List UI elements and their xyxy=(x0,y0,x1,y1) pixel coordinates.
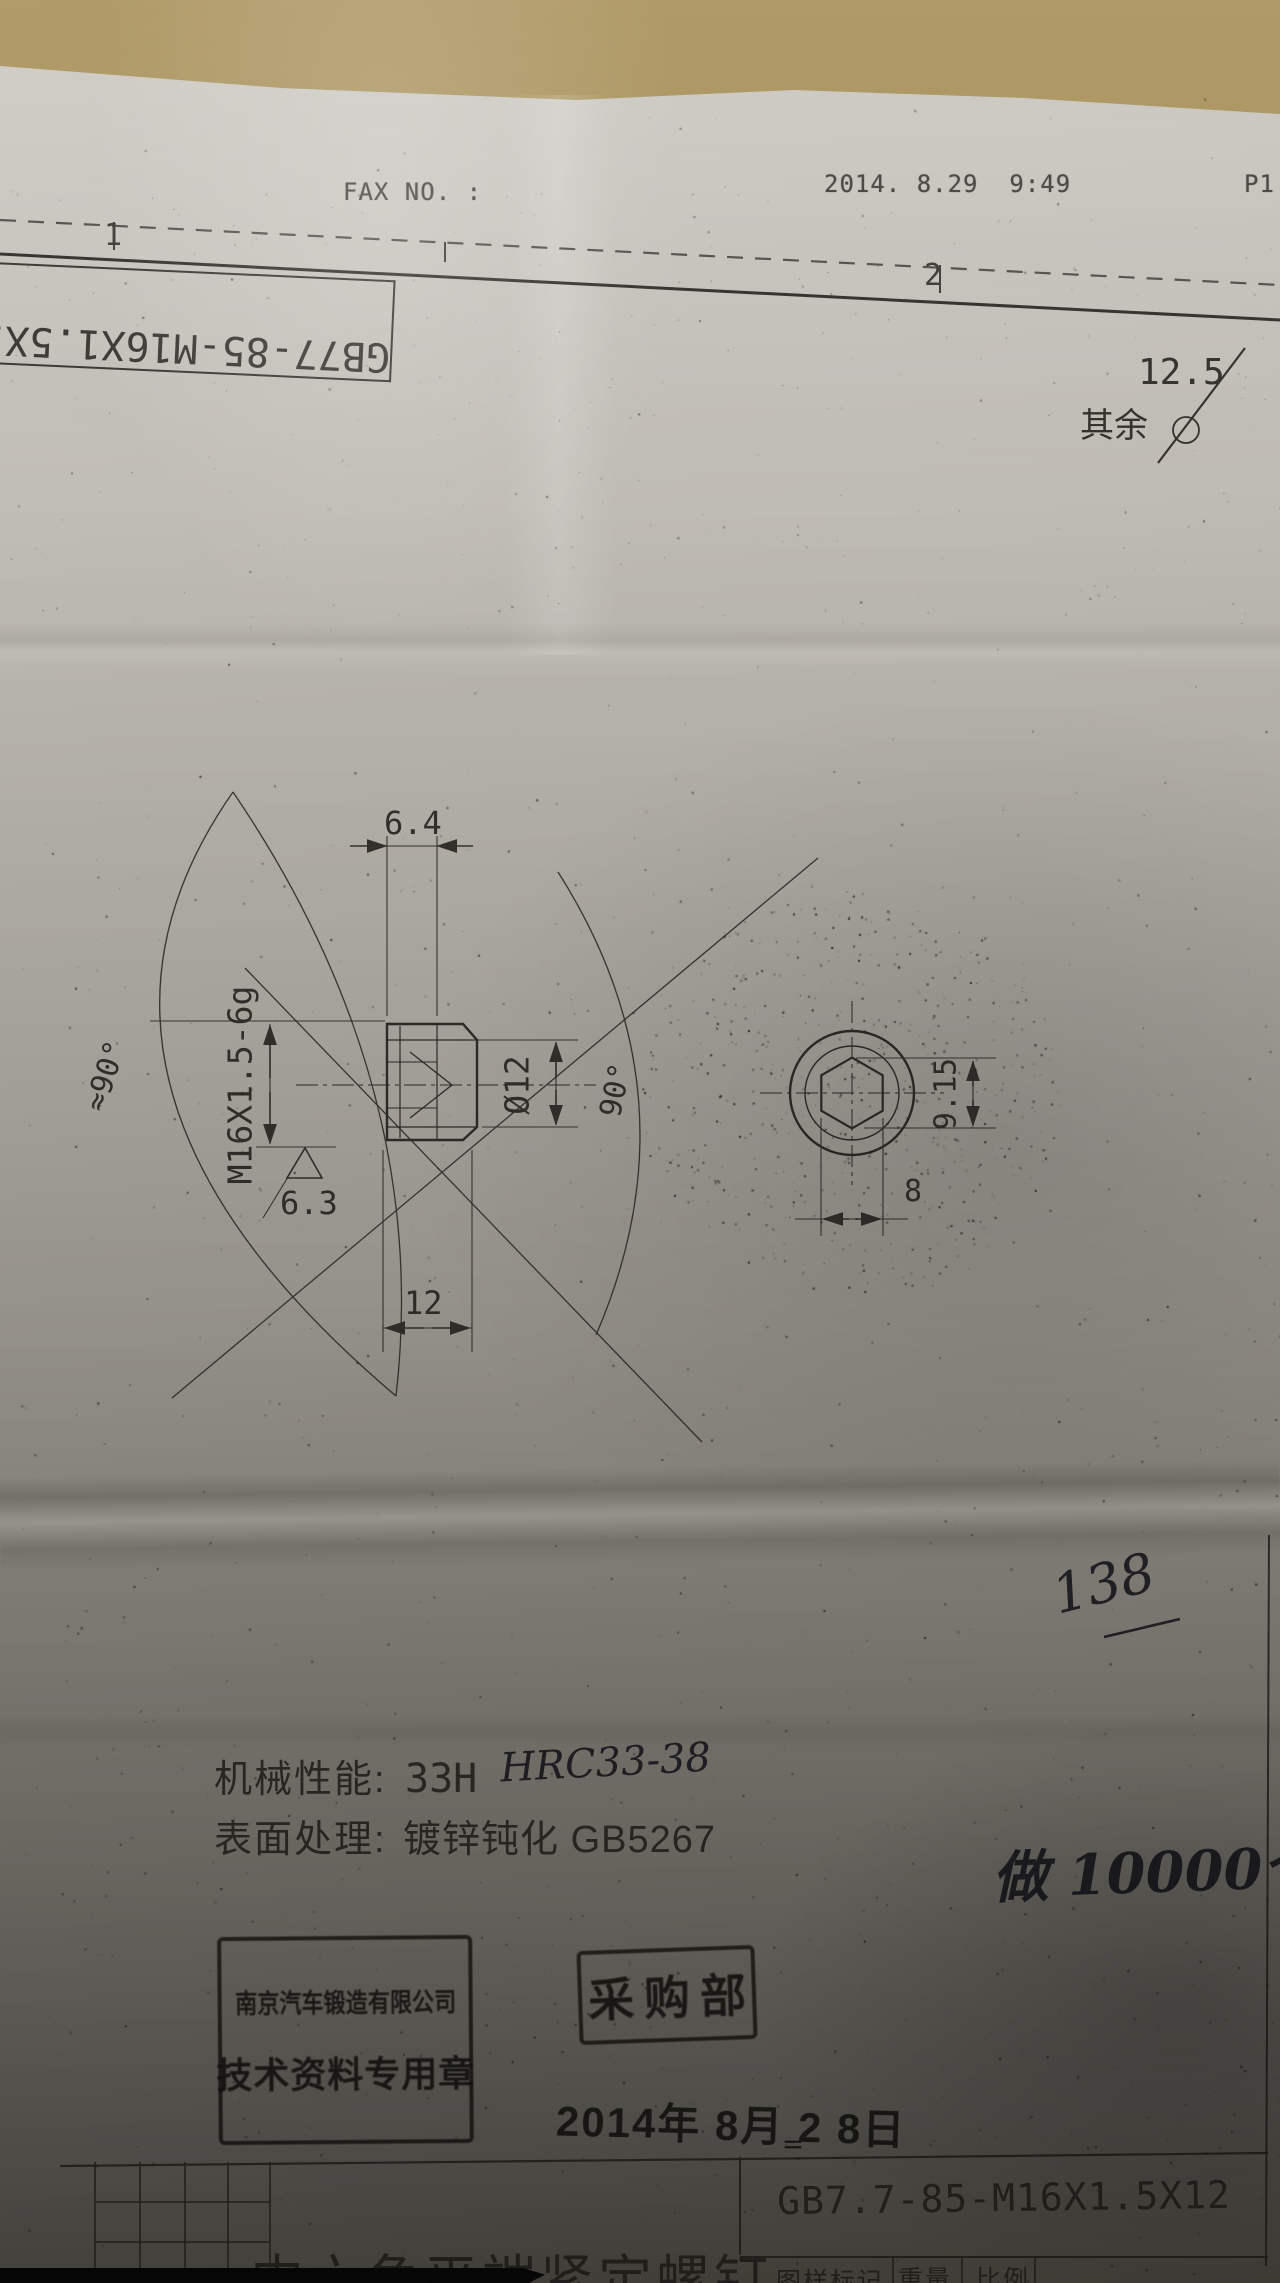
note-mechanical-label: 机械性能: xyxy=(214,1759,387,1801)
designation-text: GB7.7-85-M16X1.5X12 xyxy=(777,2173,1231,2223)
purchasing-dept-text: 采购部 xyxy=(577,1959,757,2031)
date-stamp-mark: ＝ xyxy=(782,2128,804,2160)
dim-socket-width: 6.4 xyxy=(384,804,442,842)
fax-photo-page: FAX NO. : 2014. 8.29 9:49 P1 1 2 GB77-85… xyxy=(0,0,1280,2283)
fax-datetime: 2014. 8.29 9:49 xyxy=(824,170,1071,198)
company-seal: 南京汽车锻造有限公司 技术资料专用章 xyxy=(217,1935,474,2145)
surface-roughness-prefix: 其余 xyxy=(1080,398,1148,447)
dim-point-diameter: Ø12 xyxy=(498,1055,537,1115)
flipped-designation-box: GB77-85-M16X1.5X12 xyxy=(0,262,396,382)
purchasing-dept-seal: 采购部 xyxy=(576,1945,757,2045)
title-block-header-mark: 图样标记 xyxy=(776,2262,884,2283)
surface-roughness-value: 12.5 xyxy=(1138,352,1225,393)
ruler-mark-2: 2 xyxy=(924,258,942,293)
title-block-header-weight: 重量 xyxy=(898,2260,952,2283)
dim-roughness-63: 6.3 xyxy=(280,1184,338,1222)
dim-across-corners: 9.15 xyxy=(929,1058,964,1130)
company-seal-line2: 技术资料专用章 xyxy=(216,2044,475,2098)
note-mechanical: 机械性能: 33H xyxy=(214,1748,477,1803)
note-surface: 表面处理: 镀锌钝化 GB5267 xyxy=(214,1808,716,1863)
fax-page-number: P1 xyxy=(1244,170,1275,198)
title-block-header-scale: 比例 xyxy=(976,2260,1030,2283)
screw-end-view xyxy=(760,1001,944,1185)
dim-length: 12 xyxy=(404,1284,443,1322)
fax-number-label: FAX NO. : xyxy=(343,178,482,206)
note-mechanical-value: 33H xyxy=(405,1756,477,1802)
dim-across-flats: 8 xyxy=(904,1174,922,1209)
part-name: 内六角平端紧定螺钉 xyxy=(250,2236,772,2283)
ruler-mark-1: 1 xyxy=(104,218,122,253)
handwritten-quantity: 做 10000个 xyxy=(991,1822,1280,1914)
extension-lines xyxy=(150,836,996,1352)
surface-roughness-symbol xyxy=(287,1148,322,1178)
note-surface-label: 表面处理: xyxy=(214,1819,387,1861)
handwriting-underline xyxy=(1104,1619,1180,1637)
date-stamp: 2014年 8月 2 8日 xyxy=(555,2087,907,2157)
company-seal-line1: 南京汽车锻造有限公司 xyxy=(235,1982,456,2021)
flipped-designation-text: GB77-85-M16X1.5X12 xyxy=(0,262,393,380)
dim-thread-callout: M16X1.5-6g xyxy=(221,986,260,1185)
note-surface-value: 镀锌钝化 GB5267 xyxy=(403,1819,716,1861)
